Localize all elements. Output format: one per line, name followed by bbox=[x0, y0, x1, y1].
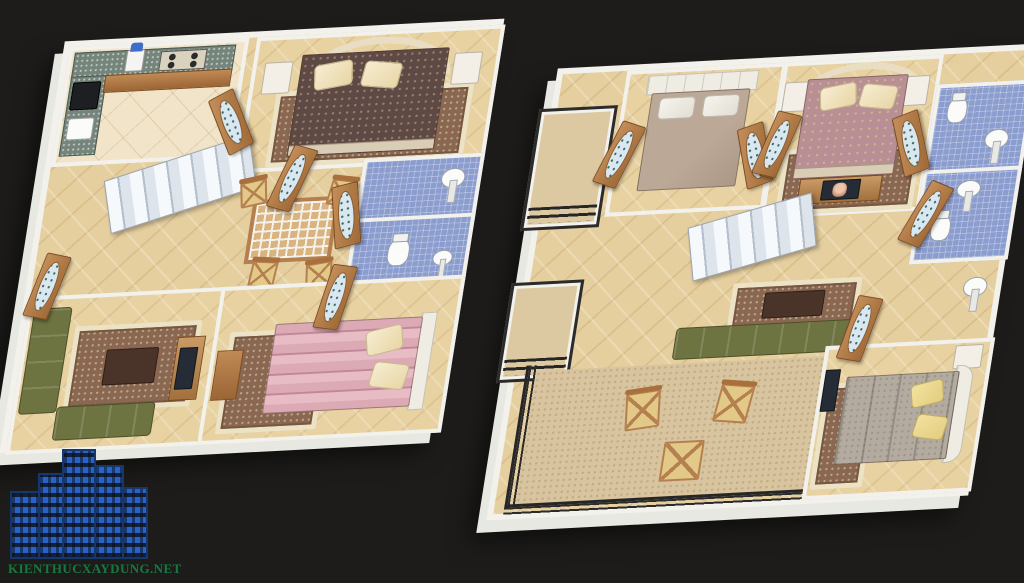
double-bed-grey bbox=[833, 371, 960, 465]
tv-screen bbox=[174, 347, 199, 390]
pillow bbox=[911, 413, 950, 441]
bathroom-lower bbox=[909, 165, 1023, 264]
double-bed-pink bbox=[262, 316, 423, 414]
wash-basin bbox=[955, 179, 982, 198]
chair-back bbox=[252, 257, 281, 263]
render-canvas: KIENTHUCXAYDUNG.NET bbox=[0, 0, 1024, 583]
floor-plan-second-floor bbox=[486, 43, 1024, 520]
nightstand bbox=[450, 51, 483, 84]
kitchen-sink bbox=[65, 117, 95, 140]
wooden-door bbox=[331, 181, 361, 250]
toilet bbox=[385, 238, 412, 267]
wash-basin bbox=[431, 249, 454, 266]
bedroom-grey bbox=[801, 337, 995, 500]
terrace-chair bbox=[624, 389, 661, 432]
pillow bbox=[365, 323, 403, 357]
logo-building-icon bbox=[94, 465, 124, 559]
double-bed-mauve bbox=[792, 74, 909, 179]
coffee-table bbox=[101, 347, 159, 386]
coffee-table bbox=[761, 290, 826, 319]
pillow bbox=[314, 59, 353, 92]
terrace-chair bbox=[712, 383, 756, 423]
terrace bbox=[515, 356, 825, 505]
bathroom-upper bbox=[922, 79, 1024, 178]
pillow bbox=[359, 60, 404, 89]
pillow bbox=[820, 81, 857, 112]
chair-back bbox=[625, 385, 662, 396]
watermark-logo: KIENTHUCXAYDUNG.NET bbox=[8, 451, 158, 579]
pillow bbox=[701, 94, 741, 118]
terrace-railing-bottom bbox=[503, 489, 807, 516]
sofa-bottom bbox=[52, 402, 156, 441]
railing-bars bbox=[526, 204, 597, 224]
pedestal-sink bbox=[983, 128, 1010, 149]
toilet bbox=[945, 97, 969, 124]
double-bed-dark-floral bbox=[287, 47, 450, 157]
gas-stove bbox=[158, 49, 208, 71]
pillow bbox=[910, 378, 944, 410]
floor-plan-first-floor bbox=[0, 19, 504, 454]
pedestal-sink bbox=[440, 167, 467, 188]
terrace-table bbox=[658, 440, 705, 482]
pillow bbox=[857, 83, 899, 110]
logo-building-icon bbox=[62, 449, 96, 559]
double-bed-taupe bbox=[636, 88, 750, 191]
logo-building-icon bbox=[10, 491, 40, 559]
logo-building-icon bbox=[122, 487, 148, 559]
nightstand bbox=[260, 61, 293, 94]
watermark-text: KIENTHUCXAYDUNG.NET bbox=[8, 561, 182, 577]
water-dispenser bbox=[124, 49, 146, 72]
pillow bbox=[367, 361, 410, 391]
logo-building-icon bbox=[38, 473, 64, 559]
tv-portrait bbox=[831, 182, 847, 197]
pillow bbox=[657, 96, 697, 120]
bedroom-dark-floral bbox=[236, 24, 506, 173]
kitchen-appliance bbox=[69, 81, 102, 110]
chair-back bbox=[721, 379, 758, 387]
tv-screen bbox=[820, 179, 861, 201]
